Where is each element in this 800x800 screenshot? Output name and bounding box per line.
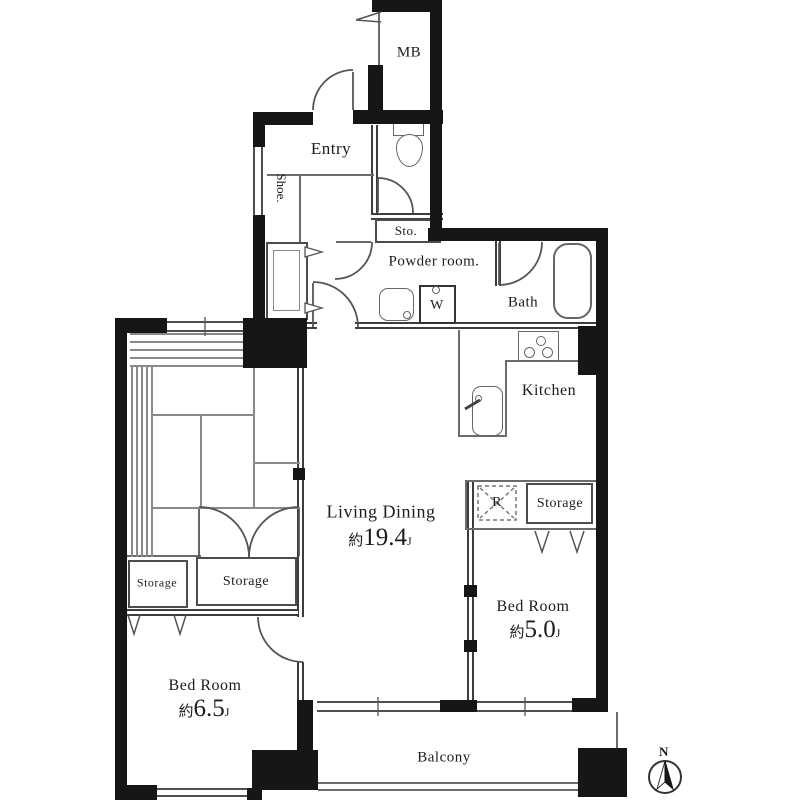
room-label-bedroom-west: Bed Room <box>169 677 242 695</box>
room-area-bedroom-east: 約5.0J <box>510 616 561 644</box>
room-label-bath: Bath <box>508 295 538 312</box>
area-prefix: 約 <box>348 533 363 549</box>
area-value: 6.5 <box>194 695 225 722</box>
door-arc-icon <box>249 507 299 557</box>
room-label-shoe: Shoe. <box>273 173 289 202</box>
room-label-living-dining: Living Dining <box>327 502 436 523</box>
folding-door-icon <box>174 615 186 634</box>
folding-door-icon <box>570 531 584 552</box>
room-label-entry: Entry <box>311 139 351 159</box>
room-area-living-dining: 約19.4J <box>348 524 411 552</box>
room-label-storage-west: Storage <box>223 574 269 590</box>
door-arc-icon <box>335 242 372 279</box>
room-label-storage-east: Storage <box>537 496 583 512</box>
folding-door-icon <box>128 615 140 634</box>
folding-door-icon <box>535 531 549 552</box>
room-label-meter-box: MB <box>397 45 421 62</box>
room-label-storage-small: Sto. <box>395 223 418 239</box>
refrigerator-label: R <box>492 495 502 511</box>
compass-icon <box>649 761 681 793</box>
room-label-balcony: Balcony <box>417 750 471 767</box>
compass-north-label: N <box>659 744 669 760</box>
floor-plan: MB Entry Shoe. Sto. Powder room. W Bath … <box>0 0 800 800</box>
mb-door-icon <box>356 12 381 22</box>
door-arc-icon <box>199 507 249 557</box>
room-label-kitchen: Kitchen <box>522 382 576 400</box>
room-label-powder-room: Powder room. <box>389 254 480 271</box>
area-value: 5.0 <box>525 616 556 643</box>
door-arc-icon <box>499 242 542 285</box>
area-prefix: 約 <box>179 704 194 720</box>
area-unit: J <box>556 626 561 640</box>
room-label-storage-west-small: Storage <box>137 576 177 591</box>
door-arc-icon <box>378 178 413 213</box>
washing-machine-label: W <box>430 298 444 314</box>
room-area-bedroom-west: 約6.5J <box>179 695 230 723</box>
door-arc-icon <box>313 282 358 327</box>
room-label-bedroom-east: Bed Room <box>497 598 570 616</box>
area-unit: J <box>225 705 230 719</box>
door-arc-icon <box>258 617 303 662</box>
kitchen-faucet-icon <box>465 400 480 409</box>
plan-overlay <box>0 0 800 800</box>
area-value: 19.4 <box>363 524 407 551</box>
shelf-arrow-icon <box>305 247 322 257</box>
door-arc-icon <box>313 70 353 110</box>
area-unit: J <box>407 534 412 548</box>
area-prefix: 約 <box>510 625 525 641</box>
